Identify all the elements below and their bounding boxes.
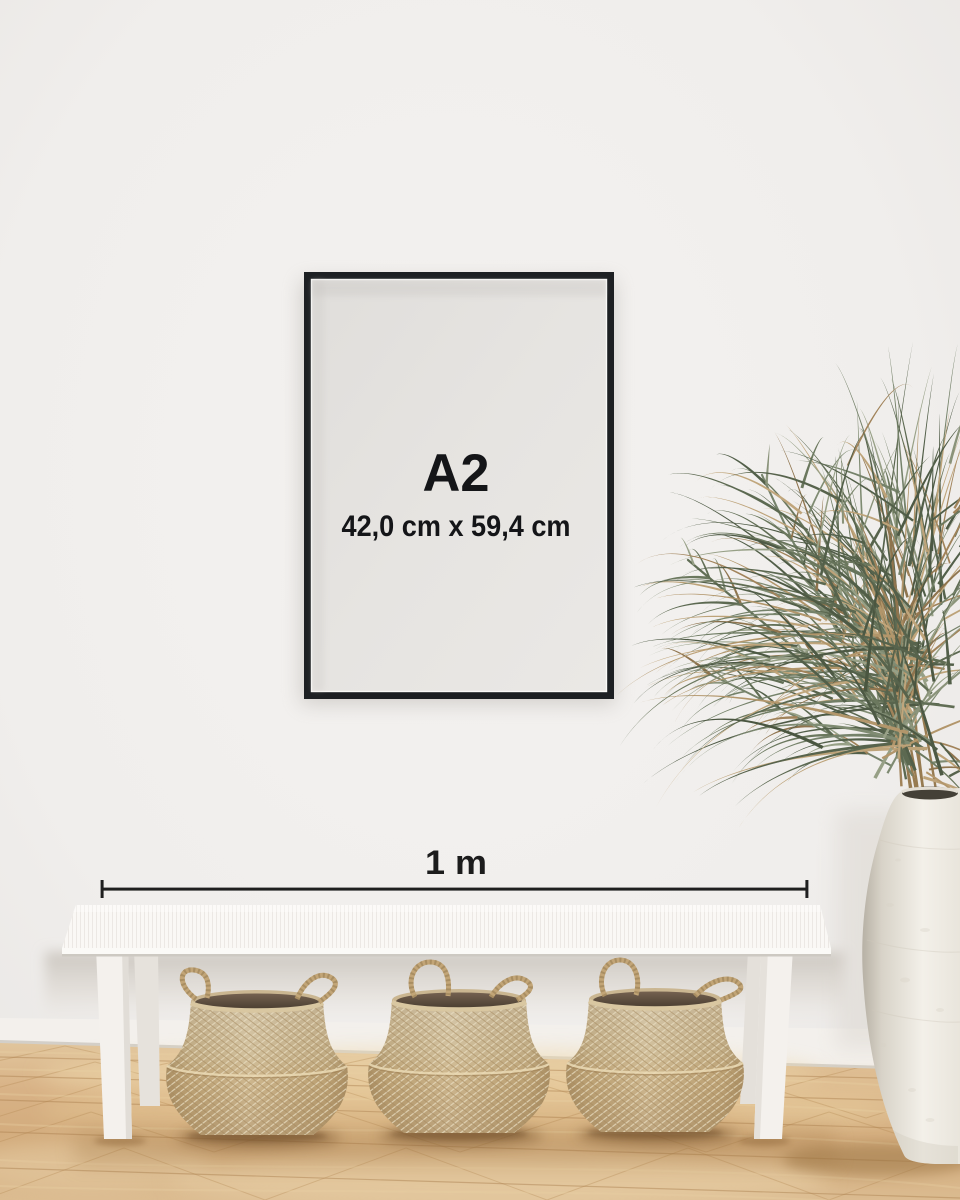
svg-text:42,0 cm x 59,4 cm: 42,0 cm x 59,4 cm: [342, 510, 571, 543]
svg-text:1 m: 1 m: [425, 844, 487, 882]
svg-text:A2: A2: [423, 444, 490, 503]
